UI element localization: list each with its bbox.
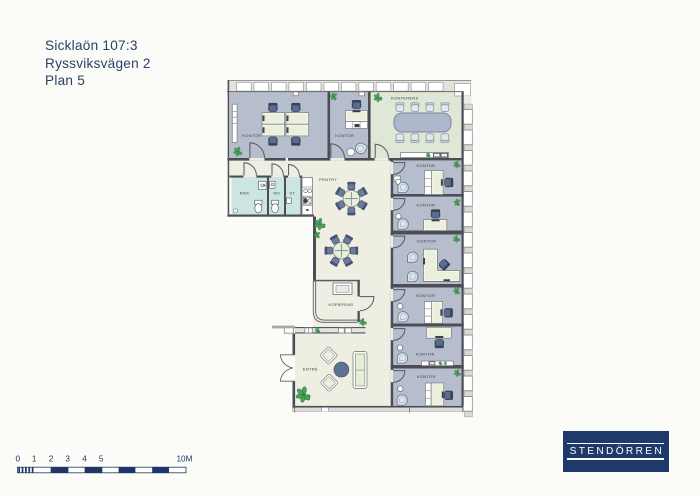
svg-text:KOPIERING: KOPIERING	[329, 302, 354, 307]
svg-text:KONTOR: KONTOR	[335, 133, 354, 138]
svg-text:KONFERENS: KONFERENS	[391, 95, 419, 100]
svg-text:ST: ST	[289, 191, 295, 196]
svg-text:3: 3	[65, 455, 70, 464]
svg-text:4: 4	[82, 455, 87, 464]
svg-text:KONTOR: KONTOR	[242, 133, 261, 138]
svg-text:ENTRÉ: ENTRÉ	[303, 366, 318, 371]
svg-text:PENTRY: PENTRY	[319, 177, 337, 182]
svg-text:KONTOR: KONTOR	[417, 374, 436, 379]
svg-text:KONTOR: KONTOR	[416, 293, 435, 298]
svg-text:0: 0	[16, 455, 21, 464]
svg-text:KONTOR: KONTOR	[417, 163, 436, 168]
svg-text:KONTOR: KONTOR	[417, 239, 436, 244]
svg-text:KONTOR: KONTOR	[416, 352, 435, 357]
svg-text:1: 1	[32, 455, 37, 464]
svg-text:5: 5	[99, 455, 104, 464]
svg-text:2: 2	[49, 455, 54, 464]
svg-text:WC: WC	[273, 191, 280, 196]
svg-text:RWC: RWC	[240, 191, 250, 196]
svg-text:10M: 10M	[177, 455, 193, 464]
svg-text:KONTOR: KONTOR	[417, 203, 436, 208]
